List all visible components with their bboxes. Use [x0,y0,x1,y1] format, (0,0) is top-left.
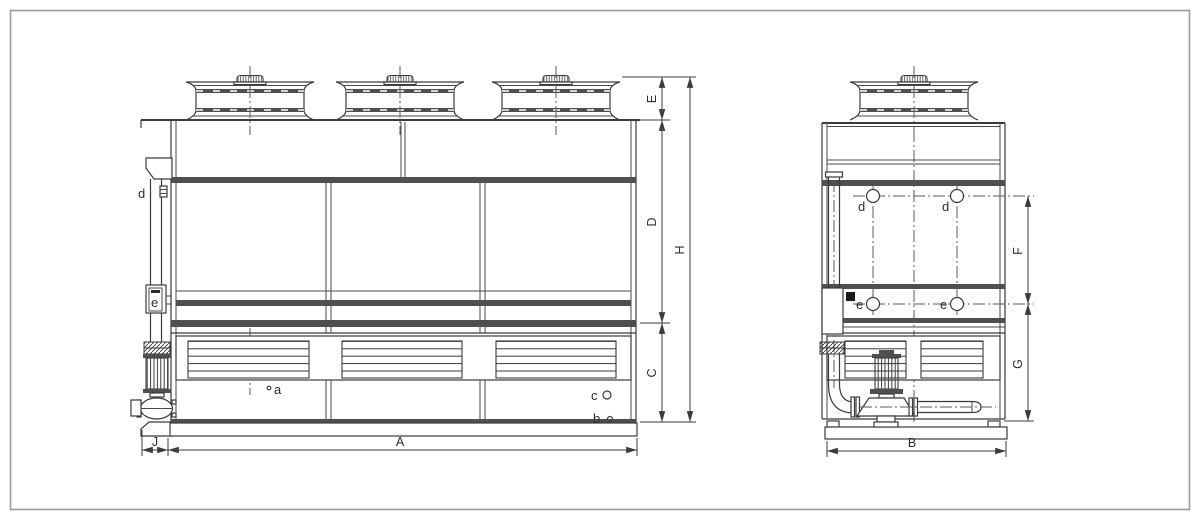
port-d-mark [951,190,964,203]
riser-pipe [146,158,172,342]
air-inlet-louvers [176,336,631,380]
pump-bracket [141,422,171,436]
suction-flange [131,400,141,416]
riser-box [822,288,843,334]
port-c-mark [603,391,611,399]
dim-label-E: E [645,95,659,103]
dim-label-D: D [645,217,659,226]
coupling-flange [144,348,170,354]
port-callouts-side: d d e e [853,186,1034,315]
spray-pump [131,342,176,419]
elbow [829,384,855,413]
fan-stack-1 [186,66,314,135]
dim-label-B: B [908,436,916,450]
junction-box [846,292,855,301]
mid-rail [176,300,631,306]
dim-label-F: F [1011,247,1025,255]
coil-bottom-rail [171,320,636,327]
louver-panel [342,341,462,378]
fan-stack-2 [336,66,464,135]
port-label-d-left: d [858,199,865,214]
side-view: d d e e F G B [820,66,1034,457]
port-label-b: b [593,411,600,426]
port-a-mark [267,386,271,390]
port-e-mark [867,298,880,311]
louver-panel [496,341,616,378]
dim-label-G: G [1011,359,1025,369]
port-label-d: d [138,186,145,201]
pipe-cap [826,172,843,177]
pump-motor [146,358,168,389]
foot [827,421,839,427]
plenum-bottom-rail [171,177,636,183]
pump-motor [875,358,898,389]
port-label-c: c [591,388,598,403]
fan-stack-side [850,66,978,135]
fan-stack-3 [492,66,620,135]
front-dimensions: E D C H J A [142,77,696,456]
dim-label-A: A [396,435,405,449]
drawing-canvas: d e a c b E D C H [0,0,1200,520]
drawing-sheet: d e a c b E D C H [0,0,1200,520]
inlet-funnel [146,158,172,179]
port-label-e-right: e [940,297,947,312]
pipe-flange [820,348,844,354]
side-louvers [827,336,1000,380]
port-label-e: e [151,295,158,310]
port-d-mark [867,190,880,203]
front-view: d e a c b E D C H [131,66,696,456]
foot [988,421,1000,427]
port-label-e-left: e [856,297,863,312]
coupling-flange [144,342,170,348]
dim-label-C: C [645,368,659,377]
dim-label-J: J [152,435,158,449]
pipe-flange [820,342,844,348]
louver-panel [188,341,309,378]
water-basin [141,380,637,436]
dim-label-H: H [673,245,687,254]
port-label-a: a [274,382,282,397]
port-label-d-right: d [942,199,949,214]
louver-panel [921,341,983,378]
port-d-fitting [160,186,167,197]
port-e-mark [951,298,964,311]
